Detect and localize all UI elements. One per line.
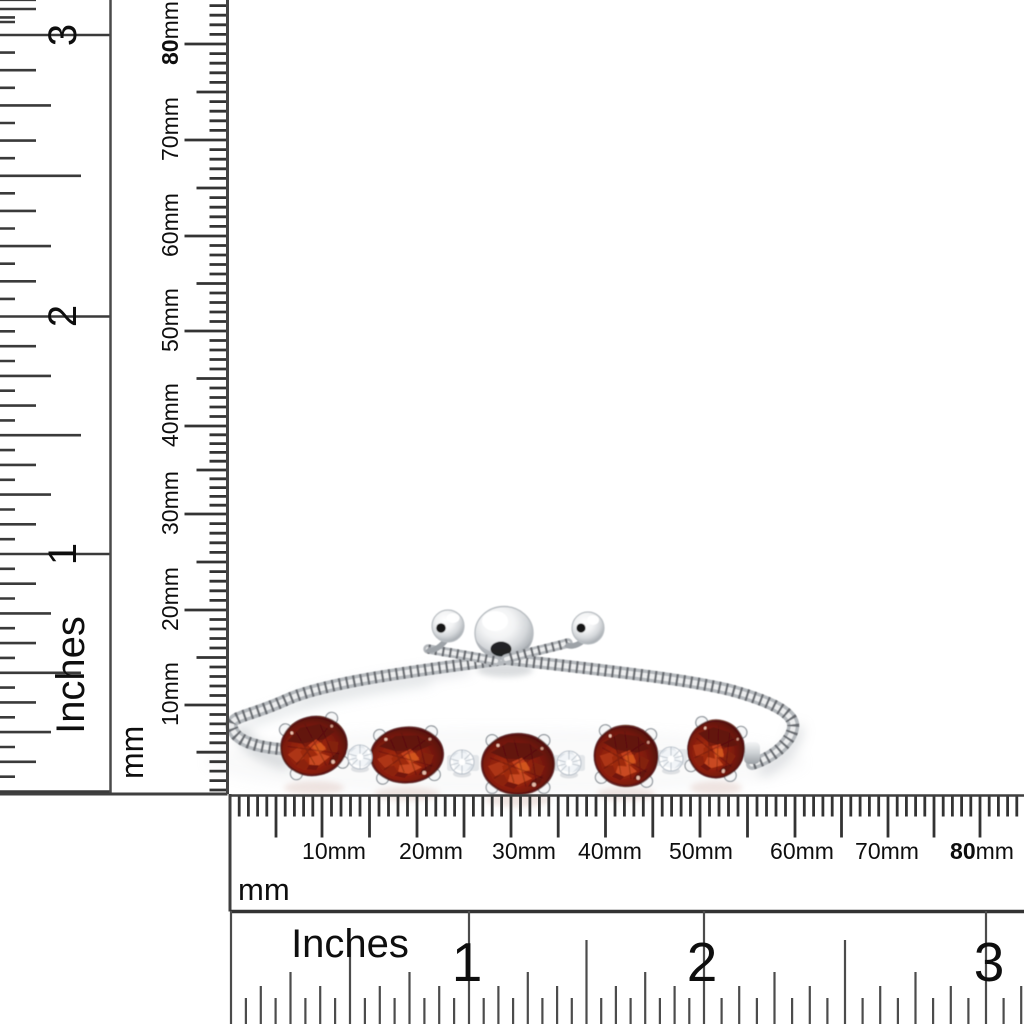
svg-text:2: 2 — [687, 931, 718, 993]
svg-text:80mm: 80mm — [950, 838, 1014, 864]
svg-text:30mm: 30mm — [157, 471, 183, 535]
svg-text:50mm: 50mm — [157, 288, 183, 352]
svg-text:40mm: 40mm — [157, 383, 183, 447]
svg-text:60mm: 60mm — [770, 838, 834, 864]
svg-text:Inches: Inches — [291, 922, 409, 966]
svg-text:20mm: 20mm — [399, 838, 463, 864]
svg-text:mm: mm — [238, 872, 290, 907]
svg-text:2: 2 — [41, 305, 85, 327]
svg-text:3: 3 — [41, 24, 85, 46]
svg-text:40mm: 40mm — [578, 838, 642, 864]
svg-text:10mm: 10mm — [157, 662, 183, 726]
svg-text:70mm: 70mm — [157, 97, 183, 161]
svg-text:10mm: 10mm — [302, 838, 366, 864]
svg-text:70mm: 70mm — [855, 838, 919, 864]
svg-text:20mm: 20mm — [157, 567, 183, 631]
svg-text:1: 1 — [41, 543, 85, 565]
svg-text:60mm: 60mm — [157, 193, 183, 257]
svg-text:Inches: Inches — [49, 616, 93, 734]
svg-text:mm: mm — [114, 726, 150, 779]
svg-text:30mm: 30mm — [492, 838, 556, 864]
svg-text:1: 1 — [452, 931, 483, 993]
svg-text:50mm: 50mm — [669, 838, 733, 864]
svg-text:3: 3 — [974, 931, 1005, 993]
svg-text:80mm: 80mm — [157, 1, 183, 65]
